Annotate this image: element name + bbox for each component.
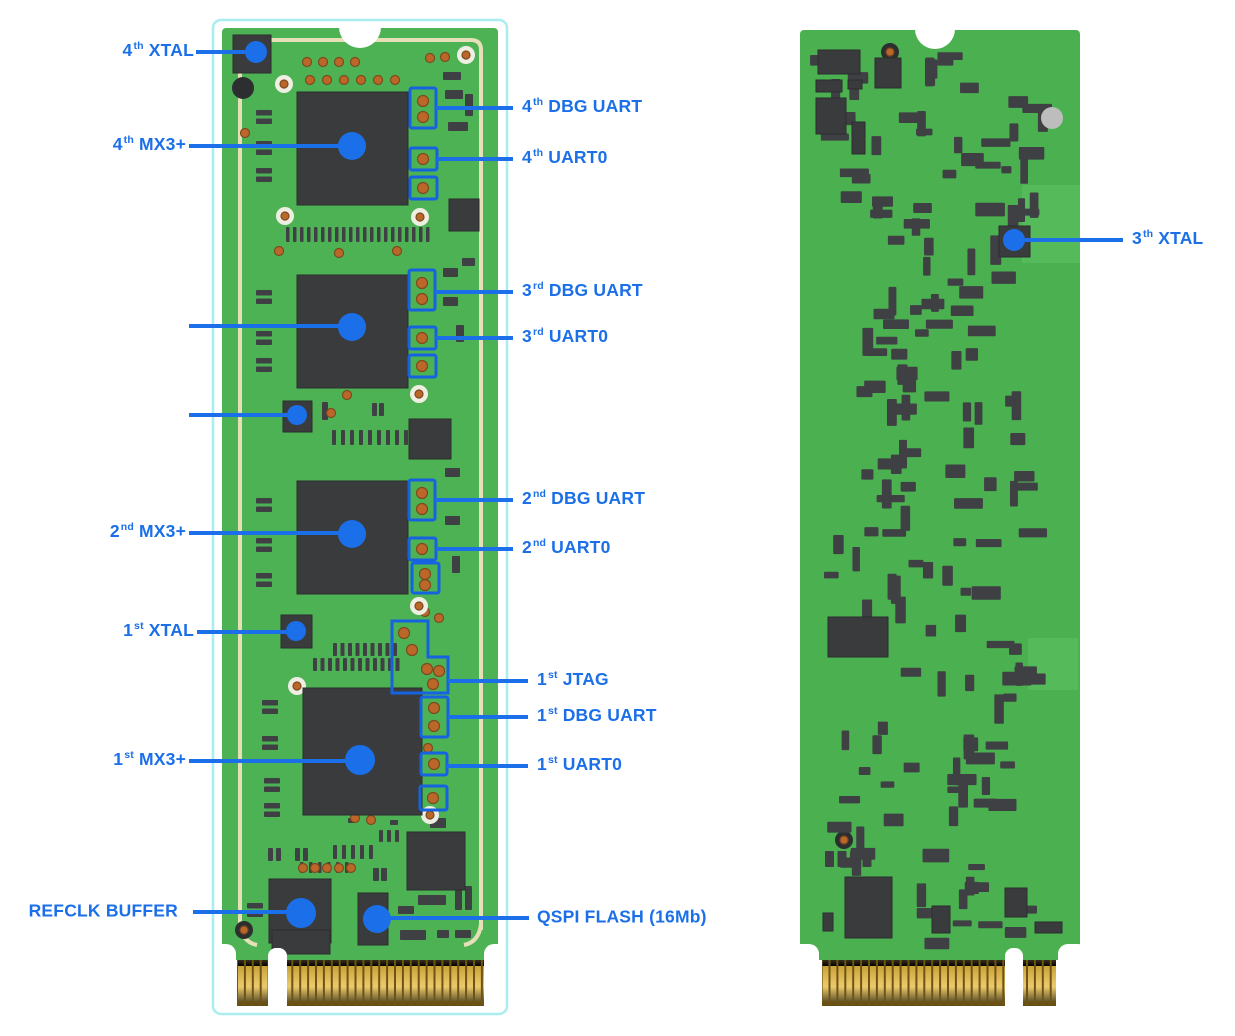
callout-text: XTAL xyxy=(149,620,194,640)
callout-ordinal-suffix: st xyxy=(124,749,134,761)
back-chip-1 xyxy=(818,50,860,74)
callout-ordinal: 2 xyxy=(110,521,120,541)
callout-text: JTAG xyxy=(563,669,609,689)
callout-text: UART0 xyxy=(548,147,607,167)
callout-ordinal-suffix: st xyxy=(548,705,558,717)
callout-dot-3rd-mx3 xyxy=(338,313,366,341)
callout-2nd-dbg-uart: 2ndDBG UART xyxy=(522,489,645,508)
callout-ordinal-suffix: nd xyxy=(121,521,134,533)
callout-1st-mx3: 1stMX3+ xyxy=(113,750,186,769)
callout-ordinal: 4 xyxy=(522,147,532,167)
back-board xyxy=(789,9,1088,1016)
callout-text: XTAL xyxy=(1158,228,1203,248)
callout-ordinal-suffix: rd xyxy=(533,326,544,338)
back-connector-key-notch xyxy=(1005,948,1023,1014)
callout-text: DBG UART xyxy=(549,280,643,300)
callout-ordinal: 1 xyxy=(113,749,123,769)
callout-2nd-mx3: 2ndMX3+ xyxy=(110,522,186,541)
callout-ordinal: 1 xyxy=(537,754,547,774)
callout-dot-4th-xtal xyxy=(245,41,267,63)
callout-ordinal: 3 xyxy=(522,326,532,346)
callout-text: UART0 xyxy=(563,754,622,774)
callout-ordinal: 1 xyxy=(537,669,547,689)
callout-ordinal-suffix: th xyxy=(533,147,543,159)
misc-chip-2 xyxy=(409,419,451,459)
back-chip-12 xyxy=(823,913,833,931)
callout-ordinal-suffix: th xyxy=(133,40,143,52)
back-chip-7 xyxy=(828,617,888,657)
callout-text: DBG UART xyxy=(548,96,642,116)
callout-qspi-flash: QSPI FLASH (16Mb) xyxy=(537,908,707,926)
callout-3th-xtal: 3thXTAL xyxy=(1132,229,1203,248)
back-chip-3 xyxy=(848,80,862,89)
callout-4th-dbg-uart: 4thDBG UART xyxy=(522,97,642,116)
callout-4th-uart0: 4thUART0 xyxy=(522,148,608,167)
callout-dot-3th-xtal xyxy=(1003,229,1025,251)
callout-ordinal-suffix: st xyxy=(548,669,558,681)
callout-ordinal-suffix: nd xyxy=(533,537,546,549)
back-left-edge-cutout xyxy=(789,944,819,1016)
callout-ordinal-suffix: th xyxy=(533,96,543,108)
front-top-mounting-notch xyxy=(339,6,381,48)
pcb-figure-canvas xyxy=(0,0,1235,1036)
callout-3rd-uart0: 3rdUART0 xyxy=(522,327,608,346)
misc-chip-3 xyxy=(407,832,465,890)
callout-dot-2nd-xtal xyxy=(287,405,307,425)
back-chip-5 xyxy=(852,122,865,154)
callout-ordinal-suffix: st xyxy=(134,620,144,632)
callout-text: REFCLK BUFFER xyxy=(29,900,178,920)
callout-ordinal: 1 xyxy=(123,620,133,640)
callout-ordinal-suffix: st xyxy=(548,754,558,766)
callout-dot-1st-mx3 xyxy=(345,745,375,775)
callout-3rd-dbg-uart: 3rdDBG UART xyxy=(522,281,643,300)
callout-text: DBG UART xyxy=(551,488,645,508)
callout-dot-2nd-mx3 xyxy=(338,520,366,548)
callout-text: XTAL xyxy=(149,40,194,60)
callout-text: UART0 xyxy=(549,326,608,346)
callout-text: MX3+ xyxy=(139,521,186,541)
back-chip-6 xyxy=(875,58,901,88)
callout-ordinal: 4 xyxy=(113,134,123,154)
callout-dot-refclk xyxy=(286,898,316,928)
callout-dot-qspi xyxy=(363,905,391,933)
back-chip-9 xyxy=(932,906,950,933)
callout-text: MX3+ xyxy=(139,749,186,769)
callout-ordinal: 3 xyxy=(1132,228,1142,248)
callout-1st-xtal: 1stXTAL xyxy=(123,621,194,640)
callout-refclk-buffer: REFCLK BUFFER xyxy=(29,902,178,920)
front-connector-key-notch xyxy=(268,948,287,1014)
callout-ordinal-suffix: th xyxy=(124,134,134,146)
back-chip-11 xyxy=(1035,922,1062,933)
callout-ordinal: 1 xyxy=(537,705,547,725)
callout-ordinal-suffix: th xyxy=(1143,228,1153,240)
callout-text: MX3+ xyxy=(139,134,186,154)
back-mounting-hole xyxy=(1041,107,1063,129)
callout-ordinal-suffix: rd xyxy=(533,280,544,292)
back-chip-10 xyxy=(1005,888,1027,917)
back-chip-4 xyxy=(816,98,846,134)
callout-1st-jtag: 1stJTAG xyxy=(537,670,609,689)
callout-ordinal: 4 xyxy=(123,40,133,60)
back-top-mounting-notch xyxy=(915,9,955,49)
callout-4th-mx3: 4thMX3+ xyxy=(113,135,186,154)
pcb-annotation-figure: 4thXTAL 4thMX3+ 2ndMX3+ 1stXTAL 1stMX3+ … xyxy=(0,0,1235,1036)
back-chip-8 xyxy=(845,877,892,938)
callout-ordinal: 3 xyxy=(522,280,532,300)
callout-ordinal: 2 xyxy=(522,537,532,557)
callout-ordinal: 4 xyxy=(522,96,532,116)
callout-text: QSPI FLASH (16Mb) xyxy=(537,906,707,926)
callout-1st-dbg-uart: 1stDBG UART xyxy=(537,706,657,725)
callout-ordinal-suffix: nd xyxy=(533,488,546,500)
callout-1st-uart0: 1stUART0 xyxy=(537,755,622,774)
callout-dot-4th-mx3 xyxy=(338,132,366,160)
back-right-edge-cutout xyxy=(1058,944,1088,1016)
misc-chip-1 xyxy=(449,199,479,231)
back-chip-2 xyxy=(816,80,842,92)
callout-ordinal: 2 xyxy=(522,488,532,508)
callout-text: DBG UART xyxy=(563,705,657,725)
callout-2nd-uart0: 2ndUART0 xyxy=(522,538,611,557)
callout-dot-1st-xtal xyxy=(286,621,306,641)
callout-text: UART0 xyxy=(551,537,610,557)
callout-4th-xtal: 4thXTAL xyxy=(123,41,194,60)
